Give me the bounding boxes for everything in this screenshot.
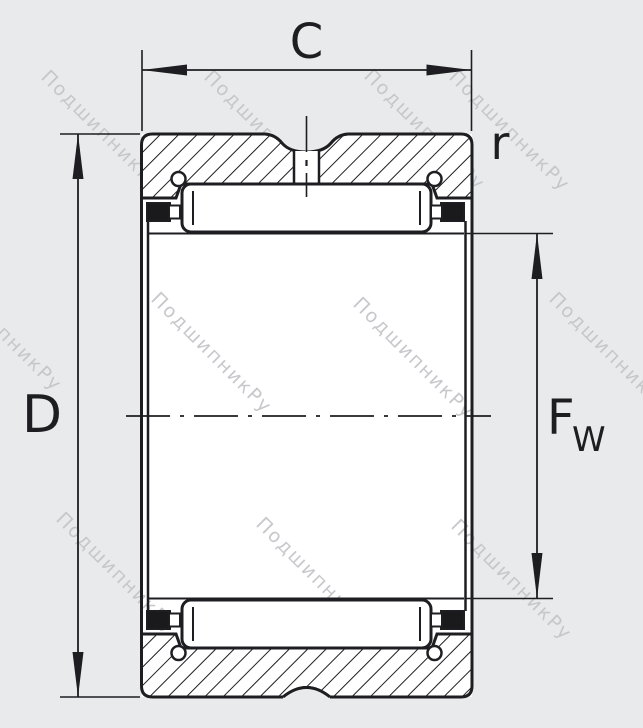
cage-notch <box>169 206 180 219</box>
cage-section-top-right <box>441 203 464 221</box>
cage-rivet <box>172 646 186 660</box>
cage-section-bottom-left <box>147 611 170 629</box>
label-bore-w-subscript: W <box>572 420 606 460</box>
cage-section-bottom-right <box>441 611 464 629</box>
cage-section-top-left <box>147 203 170 221</box>
label-corner-radius-r: r <box>491 116 510 170</box>
label-bore-f: F <box>547 390 575 446</box>
cage-notch <box>431 614 442 627</box>
cage-rivet <box>172 172 186 186</box>
bearing-diagram: ПодшипникРу ПодшипникРу ПодшипникРу Подш… <box>0 0 643 728</box>
label-width-c: C <box>290 14 324 70</box>
cage-notch <box>169 614 180 627</box>
cage-notch <box>431 206 442 219</box>
cage-rivet <box>428 172 442 186</box>
needle-roller-bottom <box>182 600 431 648</box>
label-outer-diameter-d: D <box>22 385 62 445</box>
bearing-drawing-canvas: ПодшипникРу ПодшипникРу ПодшипникРу Подш… <box>0 0 643 728</box>
cage-rivet <box>428 646 442 660</box>
